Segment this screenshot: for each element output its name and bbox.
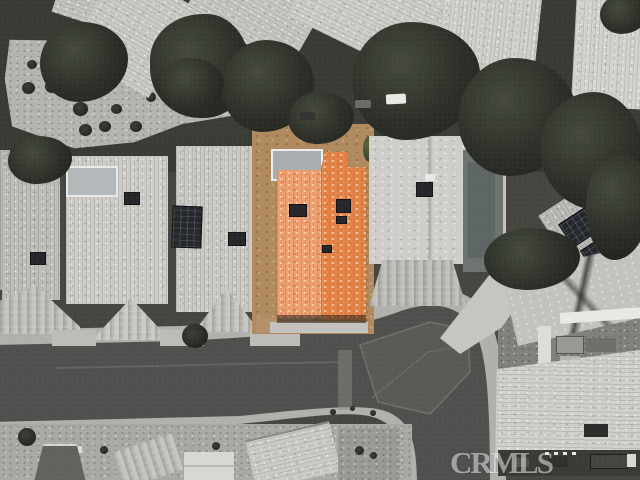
parked-car-dark <box>300 112 315 120</box>
shrub <box>350 406 355 411</box>
shrub <box>370 410 376 416</box>
neighbor-gable <box>369 260 466 306</box>
parked-car <box>355 100 371 108</box>
subject-roof-vent <box>289 204 307 217</box>
tree-canopy <box>586 150 640 260</box>
subject-roof-vent <box>336 199 351 213</box>
parked-car-white <box>386 93 406 104</box>
shrub <box>100 446 108 454</box>
chimney <box>30 252 46 265</box>
chimney <box>416 182 433 197</box>
chimney <box>228 232 246 246</box>
shrub <box>370 452 377 459</box>
street-tree <box>182 324 208 348</box>
equipment-box <box>556 336 584 354</box>
roof-vent <box>584 424 608 437</box>
row-roof-1 <box>2 170 60 300</box>
subject-roof-left <box>277 170 324 318</box>
shrub <box>212 442 220 450</box>
shrub <box>18 428 36 446</box>
equipment-box <box>586 338 616 352</box>
shrub <box>330 409 336 415</box>
subject-front-walk <box>270 322 368 333</box>
driveway-apron <box>52 330 96 346</box>
crmls-watermark: CRMLS <box>450 447 552 478</box>
subject-eave-shadow <box>277 315 366 323</box>
truck-trailer <box>590 454 628 469</box>
neighbor-roof <box>369 136 466 264</box>
truck-cab <box>627 454 636 467</box>
roof-vent-white <box>425 174 435 181</box>
chimney <box>124 192 140 205</box>
shrub <box>355 446 364 455</box>
aerial-photo: CRMLS <box>0 0 640 480</box>
road-patch-strip <box>338 350 352 410</box>
bottom-home-roof <box>184 452 234 480</box>
subject-roof-right <box>321 152 366 320</box>
tree-canopy <box>600 0 640 34</box>
patio-cover <box>66 166 118 197</box>
subject-roof-vent <box>336 216 347 224</box>
solar-panels <box>171 205 202 248</box>
bottom-home-roof <box>338 428 400 480</box>
subject-roof-vent <box>322 245 332 253</box>
